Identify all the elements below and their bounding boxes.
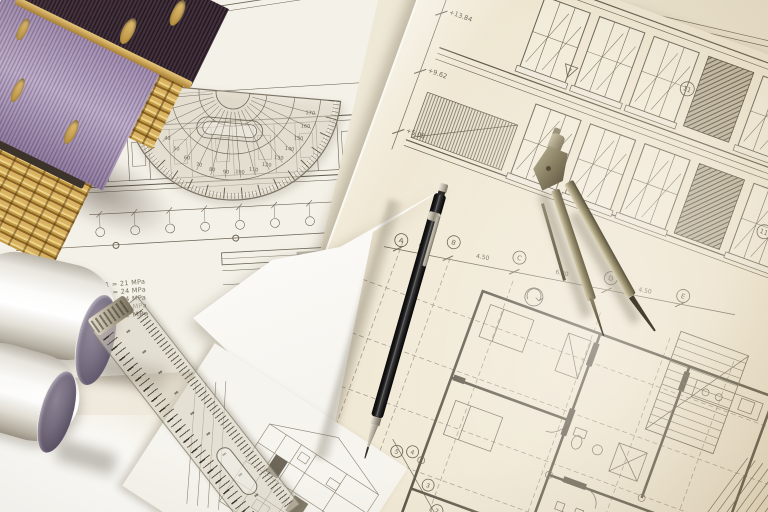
protractor-degree-label: 90 xyxy=(223,169,230,176)
roof-vent xyxy=(14,17,33,43)
protractor-degree-label: 160 xyxy=(300,123,310,130)
dim-bubble xyxy=(305,216,314,225)
roof-skylight xyxy=(117,16,140,46)
compass-hinge-screw xyxy=(546,166,551,171)
protractor-degree-label: 70 xyxy=(196,162,203,169)
roof-vent xyxy=(61,118,81,146)
protractor-degree-label: 50 xyxy=(173,146,180,153)
protractor-degree-label: 150 xyxy=(293,135,303,142)
protractor-degree-label: 170 xyxy=(305,110,315,117)
protractor-degree-label: 60 xyxy=(184,155,191,162)
protractor-degree-label: 40 xyxy=(164,135,171,142)
dim-bubble xyxy=(270,218,279,227)
roof-skylight xyxy=(167,0,189,28)
pencil-lead xyxy=(364,447,370,459)
dim-bubble xyxy=(235,220,244,229)
protractor-degree-label: 110 xyxy=(249,167,259,174)
pencil-tip-cone xyxy=(364,424,379,450)
protractor-degree-label: 100 xyxy=(235,169,245,176)
protractor-degree-label: 80 xyxy=(209,167,216,174)
blueprint-desk-photo: Rd.1 = 21 MPa Rd.2 = 24 MPa 54 MPa 14 MP… xyxy=(0,0,768,512)
protractor-degree-label: 120 xyxy=(262,162,272,169)
protractor-degree-label: 130 xyxy=(274,155,284,162)
protractor-degree-label: 140 xyxy=(285,146,295,153)
roof-vent xyxy=(8,77,27,104)
